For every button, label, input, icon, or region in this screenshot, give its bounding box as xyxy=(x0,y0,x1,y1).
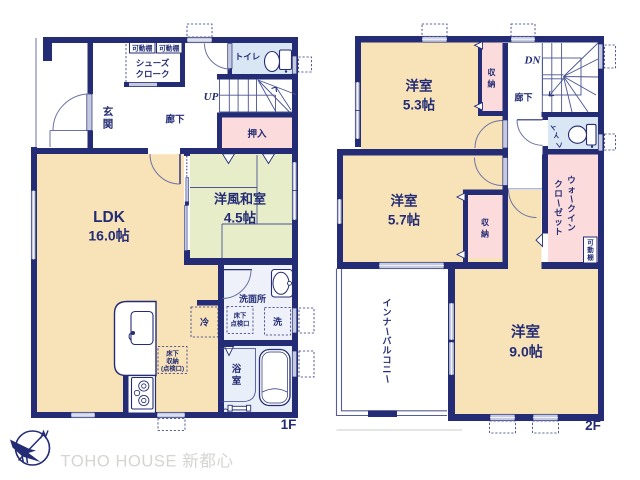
svg-text:2F: 2F xyxy=(585,418,601,433)
svg-text:冷: 冷 xyxy=(200,317,209,328)
svg-text:可: 可 xyxy=(587,239,594,247)
svg-text:UP: UP xyxy=(204,91,219,103)
svg-text:DN: DN xyxy=(524,55,542,67)
svg-text:玄: 玄 xyxy=(103,105,114,118)
svg-text:コ: コ xyxy=(382,355,391,365)
svg-text:廊下: 廊下 xyxy=(165,114,185,126)
svg-text:シューズ: シューズ xyxy=(136,58,170,68)
svg-text:16.0帖: 16.0帖 xyxy=(88,228,129,244)
svg-text:押入: 押入 xyxy=(247,128,267,140)
svg-text:洋室: 洋室 xyxy=(511,323,540,341)
svg-text:ン: ン xyxy=(382,308,391,318)
svg-text:クローク: クローク xyxy=(135,69,169,79)
svg-text:棚: 棚 xyxy=(587,253,594,262)
svg-text:バ: バ xyxy=(382,336,391,346)
svg-text:点検口: 点検口 xyxy=(231,319,250,328)
svg-text:ル: ル xyxy=(382,346,391,356)
svg-text:可動棚: 可動棚 xyxy=(159,44,180,53)
svg-text:床下: 床下 xyxy=(166,349,179,358)
svg-text:ウ: ウ xyxy=(567,175,576,185)
svg-text:1F: 1F xyxy=(281,417,297,432)
svg-text:収: 収 xyxy=(481,217,490,227)
svg-text:洋室: 洋室 xyxy=(391,193,418,209)
svg-text:洋風和室: 洋風和室 xyxy=(214,192,266,207)
svg-text:LDK: LDK xyxy=(93,209,126,226)
svg-text:ク: ク xyxy=(554,179,563,189)
svg-text:5.7帖: 5.7帖 xyxy=(388,212,421,228)
svg-text:ク: ク xyxy=(567,204,576,214)
svg-text:トイレ: トイレ xyxy=(235,52,261,62)
svg-text:可動棚: 可動棚 xyxy=(132,44,153,53)
svg-text:ゼ: ゼ xyxy=(554,208,563,218)
svg-text:ッ: ッ xyxy=(554,217,563,227)
svg-text:5.3帖: 5.3帖 xyxy=(403,97,436,113)
svg-text:動: 動 xyxy=(587,245,594,254)
svg-text:浴: 浴 xyxy=(232,363,242,375)
svg-text:収: 収 xyxy=(488,67,497,77)
svg-text:洗面所: 洗面所 xyxy=(239,293,266,304)
svg-text:イ: イ xyxy=(567,213,576,223)
svg-text:収納: 収納 xyxy=(166,356,179,365)
svg-text:関: 関 xyxy=(103,119,114,131)
svg-text:TOHO HOUSE 新都心: TOHO HOUSE 新都心 xyxy=(61,452,234,471)
svg-text:ロ: ロ xyxy=(554,189,563,199)
svg-text:納: 納 xyxy=(488,79,496,89)
svg-text:室: 室 xyxy=(232,375,242,387)
svg-text:洋室: 洋室 xyxy=(406,78,433,94)
svg-text:洗: 洗 xyxy=(273,316,282,327)
svg-text:(点検口): (点検口) xyxy=(161,364,184,373)
svg-text:イ: イ xyxy=(382,298,391,308)
svg-text:納: 納 xyxy=(481,229,489,239)
svg-text:廊下: 廊下 xyxy=(514,92,532,103)
svg-text:ー: ー xyxy=(381,374,392,385)
svg-text:9.0帖: 9.0帖 xyxy=(509,344,542,360)
svg-text:4.5帖: 4.5帖 xyxy=(224,210,257,226)
svg-text:ト: ト xyxy=(554,227,563,237)
svg-text:ン: ン xyxy=(567,223,576,233)
svg-text:床下: 床下 xyxy=(234,311,247,320)
svg-text:ォ: ォ xyxy=(567,185,576,195)
